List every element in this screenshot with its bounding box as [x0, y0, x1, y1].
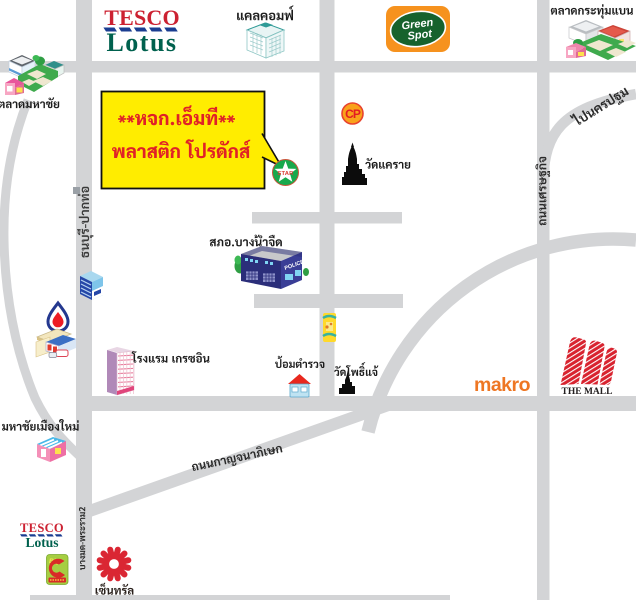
svg-text:TESCO: TESCO: [20, 521, 64, 535]
svg-text:Lotus: Lotus: [25, 535, 58, 550]
svg-text:CP: CP: [345, 107, 361, 121]
svg-text:Lotus: Lotus: [106, 28, 177, 57]
svg-text:THE MALL: THE MALL: [562, 387, 613, 397]
svg-text:makro: makro: [474, 374, 531, 396]
svg-text:STAR: STAR: [277, 171, 294, 177]
svg-text:TESCO: TESCO: [104, 5, 180, 30]
